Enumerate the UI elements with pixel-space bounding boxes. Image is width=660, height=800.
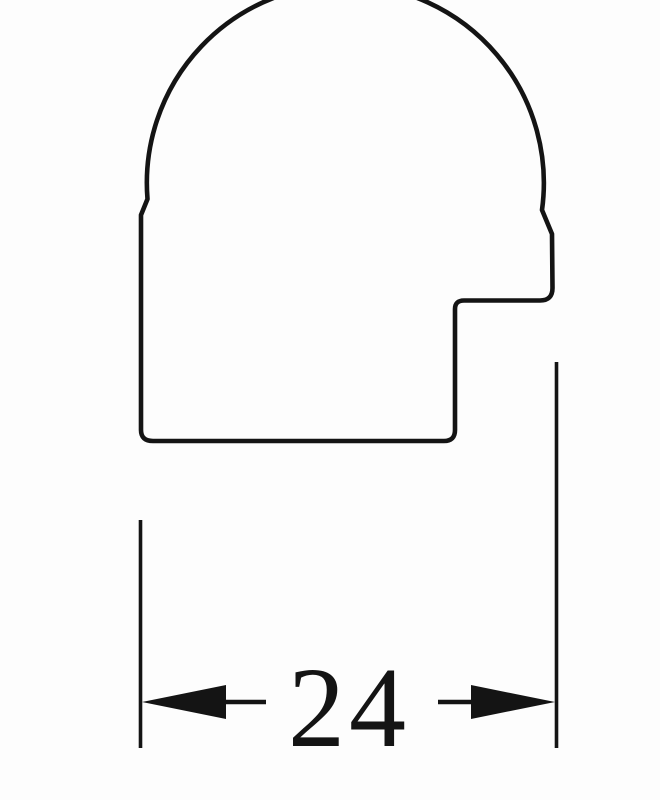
dimension-value: 24 [288, 644, 410, 771]
dimension-arrowhead-left-icon [142, 685, 226, 719]
dimension-arrowhead-right-icon [471, 685, 555, 719]
drawing-canvas: 24 [0, 0, 660, 800]
moulding-profile-outline [141, 0, 553, 441]
technical-drawing: 24 [0, 0, 660, 800]
